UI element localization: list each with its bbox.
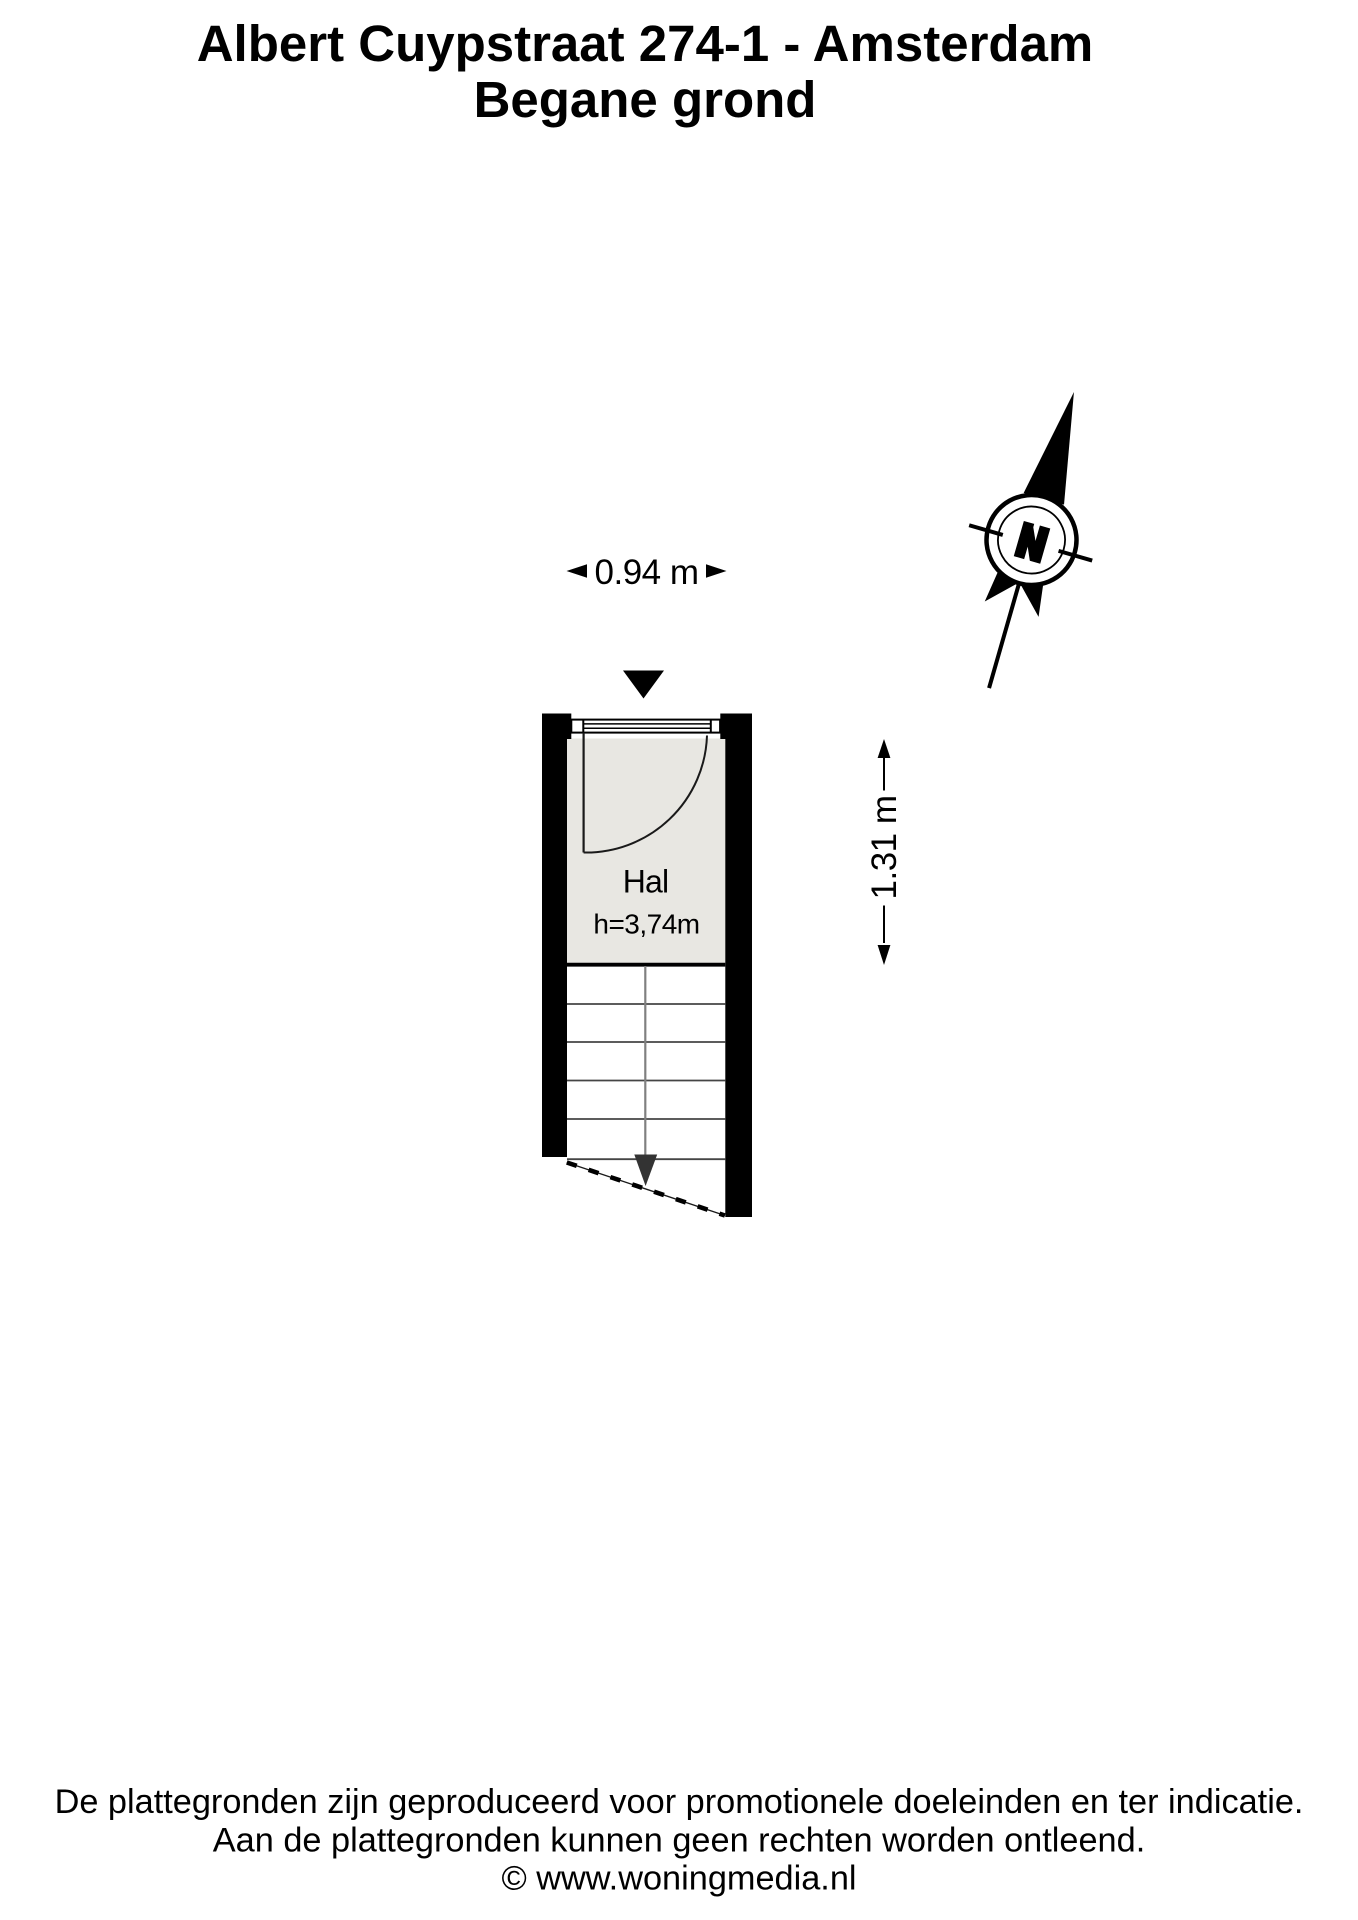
svg-text:0.94 m: 0.94 m <box>595 553 699 592</box>
svg-text:h=3,74m: h=3,74m <box>593 909 699 940</box>
svg-text:Hal: Hal <box>623 864 669 900</box>
svg-text:Albert Cuypstraat 274-1 - Amst: Albert Cuypstraat 274-1 - Amsterdam <box>197 15 1094 72</box>
svg-text:© www.woningmedia.nl: © www.woningmedia.nl <box>501 1860 856 1898</box>
svg-text:1.31 m: 1.31 m <box>865 796 904 900</box>
svg-text:Aan de plattegronden kunnen ge: Aan de plattegronden kunnen geen rechten… <box>213 1822 1145 1860</box>
svg-text:De plattegronden zijn geproduc: De plattegronden zijn geproduceerd voor … <box>55 1783 1304 1821</box>
svg-text:Begane grond: Begane grond <box>474 71 817 128</box>
